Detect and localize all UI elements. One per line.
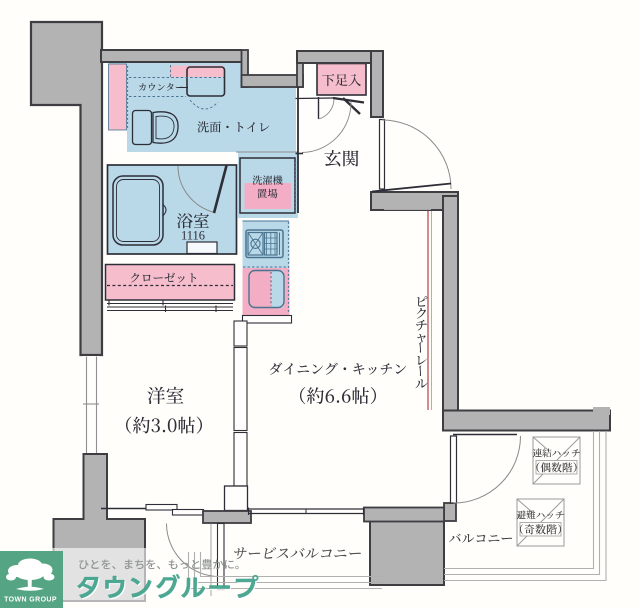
- svg-text:TOWN GROUP: TOWN GROUP: [4, 597, 57, 604]
- svg-text:1116: 1116: [181, 229, 205, 243]
